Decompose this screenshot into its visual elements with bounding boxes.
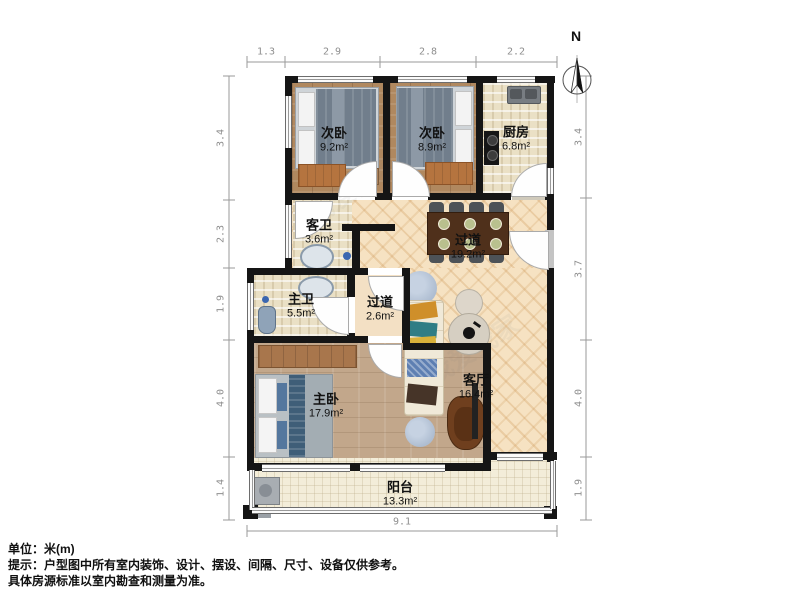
dresser-bedroom1	[298, 164, 346, 187]
wall-bedrooms-bottom	[285, 193, 338, 200]
wall-bedrooms-bottom	[428, 193, 511, 200]
window-master-bath	[247, 283, 254, 330]
pillow-accent	[277, 421, 287, 449]
dim-top-1: 1.3	[257, 47, 275, 58]
wall-right-lower	[547, 268, 554, 462]
sofa-pillow	[406, 383, 438, 405]
dim-left-2: 2.3	[216, 225, 227, 243]
floorplan-canvas: 我爱我家 我爱我家	[0, 0, 800, 600]
pillow	[298, 130, 315, 165]
wall-masterbath-hall	[347, 275, 355, 297]
wall-right-upper	[547, 76, 554, 230]
label-guest-bath: 客卫 3.6m²	[305, 218, 333, 247]
window-bedroom1	[298, 76, 373, 83]
wall-living-corner	[483, 452, 491, 471]
kettle-spout	[473, 321, 481, 328]
sink-basin	[510, 89, 522, 99]
footer-notes: 单位：米(m) 提示：户型图中所有室内装饰、设计、摆设、间隔、尺寸、设备仅供参考…	[8, 541, 404, 589]
dim-right-4: 1.9	[574, 479, 585, 497]
kitchen-sink	[507, 86, 541, 104]
window-bedroom2	[398, 76, 467, 83]
round-rug	[405, 417, 435, 447]
window-bedroom1-left	[285, 96, 292, 148]
pillow-accent	[277, 383, 287, 411]
wall-guest-bath-right	[352, 231, 360, 268]
kettle	[463, 327, 475, 339]
wall-guest-bath-stub	[342, 224, 395, 231]
dim-top-3: 2.8	[419, 47, 437, 58]
wall-masterbed-living	[483, 350, 491, 463]
window-masterbed	[262, 464, 350, 472]
armchair	[447, 396, 485, 450]
dim-left-5: 1.4	[216, 479, 227, 497]
wall-masterbath-top	[247, 268, 368, 275]
label-master-bedroom: 主卧 17.9m²	[309, 392, 343, 421]
pillow	[258, 417, 277, 453]
stove	[484, 131, 499, 165]
guest-bath-faucet	[343, 252, 351, 260]
wardrobe	[258, 345, 357, 368]
window-living	[497, 453, 543, 461]
dim-right-2: 3.7	[574, 260, 585, 278]
blanket-runner	[289, 375, 305, 457]
balcony-window-left	[249, 470, 255, 510]
master-bath-faucet	[262, 296, 269, 303]
label-hallway-large: 过道 19.2m²	[451, 233, 485, 262]
footer-tip: 提示：户型图中所有室内装饰、设计、摆设、间隔、尺寸、设备仅供参考。	[8, 557, 404, 573]
footer-unit: 单位：米(m)	[8, 541, 404, 557]
pillow	[455, 129, 472, 164]
dim-right-3: 4.0	[574, 389, 585, 407]
pillow	[258, 378, 277, 414]
label-living: 客厅 16.4m²	[459, 373, 493, 402]
dim-left-4: 4.0	[216, 389, 227, 407]
dim-right-1: 3.4	[574, 128, 585, 146]
burner	[487, 135, 498, 146]
guest-bath-sink	[300, 244, 334, 270]
toilet	[258, 306, 276, 334]
plate	[490, 238, 502, 250]
window-masterbed2	[360, 464, 445, 472]
wall-bedroom1-bedroom2	[383, 76, 390, 200]
dim-bottom-1: 9.1	[393, 517, 411, 528]
label-bedroom2: 次卧 8.9m²	[418, 126, 446, 155]
dim-top-2: 2.9	[323, 47, 341, 58]
label-balcony: 阳台 13.3m²	[383, 480, 417, 509]
wall-masterbed-top	[403, 343, 491, 350]
label-kitchen: 厨房 6.8m²	[502, 125, 530, 154]
dim-left-1: 3.4	[216, 129, 227, 147]
pillow	[455, 91, 472, 126]
sofa-pillow	[407, 359, 437, 377]
washing-machine	[252, 477, 280, 505]
footer-tip2: 具体房源标准以室内勘查和测量为准。	[8, 573, 404, 589]
pillow	[298, 92, 315, 127]
wall-masterbath-bottom	[247, 336, 368, 343]
north-arrow-icon	[552, 55, 602, 103]
window-kitchen	[497, 76, 535, 83]
window-kitchen-right	[547, 168, 554, 194]
sofa-pillow	[406, 301, 438, 321]
dim-left-3: 1.9	[216, 295, 227, 313]
plate	[438, 238, 450, 250]
wall-bedroom2-kitchen	[476, 76, 483, 200]
label-bedroom1: 次卧 9.2m²	[320, 126, 348, 155]
label-hallway-small: 过道 2.6m²	[366, 295, 394, 324]
label-master-bath: 主卫 5.5m²	[287, 292, 315, 321]
balcony-window-right	[550, 461, 556, 509]
plate	[438, 218, 450, 230]
sink-basin	[525, 89, 537, 99]
north-label: N	[571, 28, 581, 44]
dresser-bedroom2	[425, 162, 473, 185]
sofa	[404, 300, 444, 416]
plate	[490, 218, 502, 230]
dim-top-4: 2.2	[507, 47, 525, 58]
burner	[487, 150, 498, 161]
plate	[464, 218, 476, 230]
washer-door	[259, 484, 272, 497]
window-guest-bath	[285, 205, 292, 258]
